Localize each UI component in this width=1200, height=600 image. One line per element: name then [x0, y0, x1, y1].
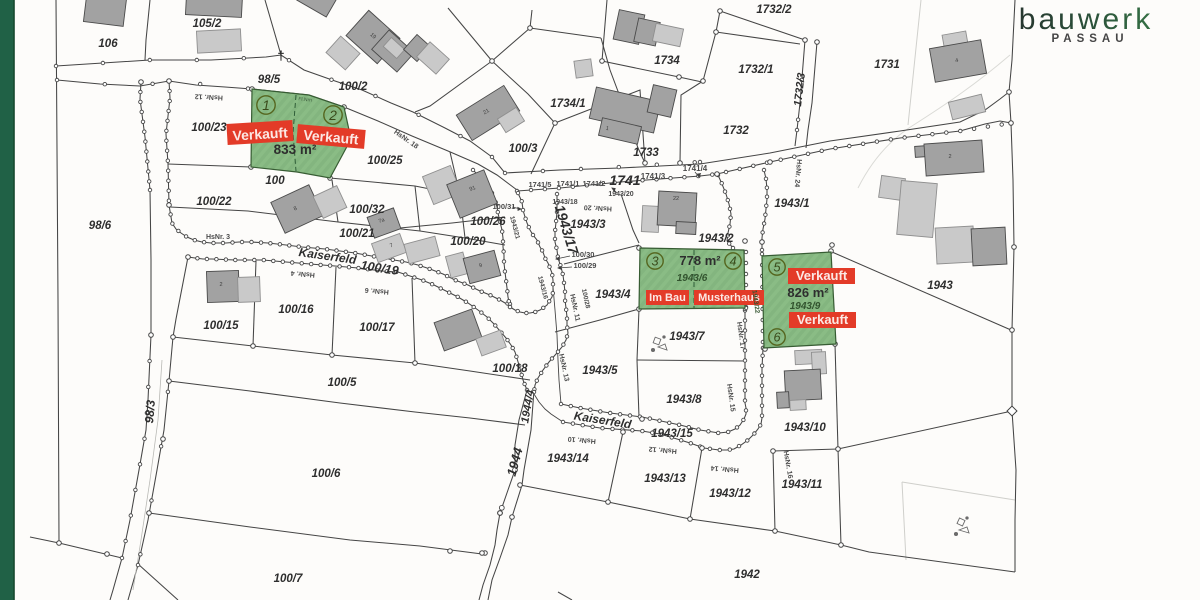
svg-text:1741: 1741 — [609, 172, 640, 188]
svg-text:100/5: 100/5 — [328, 377, 357, 389]
svg-text:106: 106 — [98, 38, 118, 50]
svg-text:98/6: 98/6 — [89, 220, 112, 232]
svg-text:1732: 1732 — [723, 125, 749, 137]
svg-text:1943/8: 1943/8 — [666, 394, 702, 406]
svg-text:100/32: 100/32 — [349, 204, 385, 216]
svg-text:1942: 1942 — [734, 569, 760, 581]
svg-text:100: 100 — [265, 175, 285, 187]
svg-text:1943/15: 1943/15 — [651, 428, 693, 440]
svg-text:2: 2 — [948, 154, 951, 160]
svg-text:2: 2 — [219, 282, 222, 288]
svg-text:Verkauft: Verkauft — [232, 124, 288, 143]
svg-text:1734/1: 1734/1 — [550, 98, 585, 110]
svg-text:1: 1 — [262, 98, 270, 113]
svg-text:3: 3 — [651, 254, 658, 268]
svg-text:100/20: 100/20 — [450, 236, 486, 248]
svg-text:100/18: 100/18 — [492, 363, 528, 375]
svg-text:1732/2: 1732/2 — [756, 4, 792, 16]
svg-text:833 m²: 833 m² — [274, 142, 317, 157]
svg-text:100/23: 100/23 — [191, 122, 227, 134]
svg-text:1943/9: 1943/9 — [790, 301, 821, 312]
svg-text:HsNr. 12: HsNr. 12 — [195, 92, 223, 100]
svg-text:22: 22 — [673, 196, 679, 202]
svg-text:bauwerk: bauwerk — [1019, 3, 1153, 36]
svg-text:1943/12: 1943/12 — [709, 488, 751, 500]
svg-text:100/25: 100/25 — [367, 155, 403, 167]
svg-text:100/29: 100/29 — [574, 261, 597, 270]
svg-text:1741/2: 1741/2 — [583, 179, 606, 188]
svg-text:Im Bau: Im Bau — [649, 292, 686, 304]
svg-text:100/21: 100/21 — [339, 228, 374, 240]
svg-text:Verkauft: Verkauft — [796, 268, 848, 283]
svg-text:100/3: 100/3 — [509, 143, 538, 155]
svg-text:†: † — [277, 48, 284, 63]
svg-text:HsNr. 3: HsNr. 3 — [206, 234, 230, 241]
svg-text:5: 5 — [773, 260, 781, 274]
svg-text:Musterhaus: Musterhaus — [698, 292, 760, 304]
svg-text:1943/18: 1943/18 — [552, 199, 577, 206]
svg-text:100/2: 100/2 — [339, 81, 368, 93]
svg-text:100/15: 100/15 — [203, 320, 239, 332]
svg-text:1741/3: 1741/3 — [641, 172, 666, 181]
svg-text:1943/5: 1943/5 — [582, 365, 618, 377]
svg-text:2: 2 — [328, 108, 337, 123]
svg-text:1943/13: 1943/13 — [644, 473, 686, 485]
svg-text:Verkauft: Verkauft — [797, 312, 849, 327]
svg-text:1943/7: 1943/7 — [669, 331, 705, 343]
svg-text:1741/1: 1741/1 — [557, 179, 580, 188]
svg-text:HsNr. 20: HsNr. 20 — [584, 203, 612, 211]
svg-text:100/7: 100/7 — [274, 573, 303, 585]
svg-text:100/22: 100/22 — [196, 196, 232, 208]
svg-text:100/30: 100/30 — [572, 250, 595, 259]
svg-text:1741/5: 1741/5 — [529, 180, 552, 189]
svg-text:1943: 1943 — [927, 280, 953, 292]
svg-text:6: 6 — [773, 330, 781, 344]
svg-text:4: 4 — [729, 254, 736, 268]
svg-text:1943/6: 1943/6 — [677, 273, 708, 284]
svg-text:100/17: 100/17 — [359, 322, 395, 334]
svg-text:100/31: 100/31 — [493, 202, 516, 211]
svg-text:1732/1: 1732/1 — [738, 64, 773, 76]
svg-text:826 m²: 826 m² — [787, 285, 829, 300]
svg-text:1943/11: 1943/11 — [782, 479, 823, 491]
svg-text:100/16: 100/16 — [278, 304, 314, 316]
svg-text:778 m²: 778 m² — [679, 253, 721, 268]
svg-text:1943/20: 1943/20 — [608, 191, 633, 198]
svg-text:1943/10: 1943/10 — [784, 422, 826, 434]
svg-text:98/5: 98/5 — [258, 74, 281, 86]
svg-text:1731: 1731 — [874, 59, 900, 71]
svg-text:1741/4: 1741/4 — [683, 164, 708, 173]
svg-text:1943/14: 1943/14 — [547, 453, 589, 465]
svg-text:1733: 1733 — [633, 147, 659, 159]
svg-text:105/2: 105/2 — [193, 18, 222, 30]
svg-text:1943/1: 1943/1 — [774, 198, 809, 210]
svg-text:100/26: 100/26 — [470, 216, 506, 228]
svg-text:1943/2: 1943/2 — [698, 233, 734, 245]
svg-text:1734: 1734 — [654, 55, 680, 67]
svg-text:PASSAU: PASSAU — [1051, 33, 1128, 45]
svg-text:98/3: 98/3 — [142, 399, 158, 424]
svg-text:1943/4: 1943/4 — [595, 289, 631, 301]
svg-text:100/6: 100/6 — [312, 468, 341, 480]
